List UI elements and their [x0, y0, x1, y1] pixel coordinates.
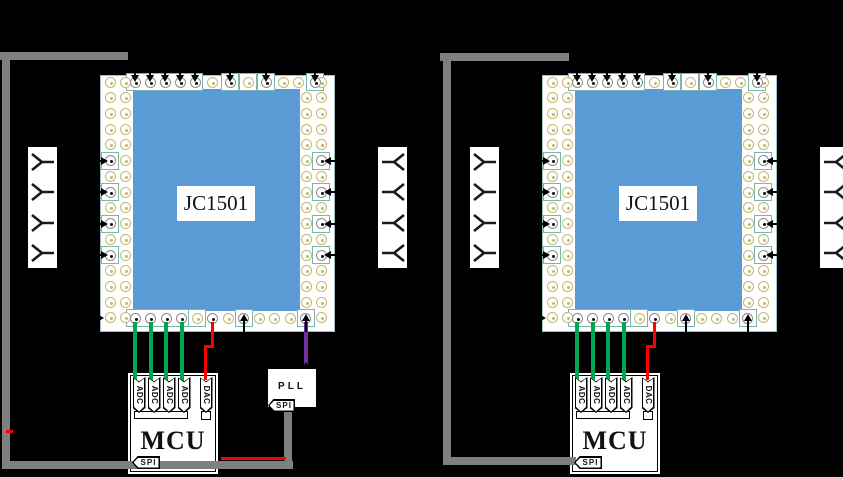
- pad-dot: [552, 317, 555, 320]
- mcu-label: MCU: [130, 425, 216, 457]
- red-mark: [6, 430, 13, 433]
- pad: [293, 77, 304, 88]
- pad: [316, 171, 327, 182]
- pad: [758, 108, 769, 119]
- pad: [547, 171, 558, 182]
- pad-dot: [567, 317, 570, 320]
- pad: [634, 313, 645, 324]
- pad: [120, 312, 131, 323]
- pad: [316, 202, 327, 213]
- pad-dot: [567, 223, 570, 226]
- pad-dot: [670, 318, 673, 321]
- pad: [120, 124, 131, 135]
- pad: [562, 139, 573, 150]
- pad-dot: [306, 129, 309, 132]
- pad-dot: [552, 113, 555, 116]
- pad-dot: [763, 239, 766, 242]
- pad-dot: [748, 286, 751, 289]
- pad-dot: [212, 82, 215, 85]
- pad-dot: [248, 82, 251, 85]
- pad-dot: [197, 318, 200, 321]
- pad-dot: [135, 318, 138, 321]
- pad-dot: [716, 318, 719, 321]
- pad-dot: [577, 318, 580, 321]
- arrow-shaft: [331, 191, 341, 193]
- arrow-down-icon: [603, 75, 611, 82]
- arrow-right-icon: [539, 314, 546, 322]
- pad-dot: [567, 97, 570, 100]
- pad: [316, 108, 327, 119]
- pad: [105, 139, 116, 150]
- arrow-shaft: [331, 160, 341, 162]
- mcu-spi-label: SPI: [579, 456, 602, 469]
- pad: [547, 108, 558, 119]
- pad-dot: [748, 113, 751, 116]
- pad: [316, 297, 327, 308]
- pad-dot: [321, 129, 324, 132]
- pll-spi-label: SPI: [273, 399, 295, 412]
- mcu-pin-tag-adc4: ADC: [620, 377, 633, 413]
- pad-dot: [748, 129, 751, 132]
- pad-dot: [567, 176, 570, 179]
- pad: [562, 77, 573, 88]
- pad-dot: [552, 176, 555, 179]
- pad-dot: [125, 239, 128, 242]
- mcu-pin-tag-adc3: ADC: [605, 377, 618, 413]
- pad-dot: [110, 144, 113, 147]
- pad-dot: [592, 318, 595, 321]
- antenna-icon: [31, 243, 55, 263]
- pad: [105, 265, 116, 276]
- pad-dot: [748, 270, 751, 273]
- pad: [758, 171, 769, 182]
- arrow-left-icon: [766, 251, 773, 259]
- pad-dot: [567, 113, 570, 116]
- pad-dot: [654, 82, 657, 85]
- mcu-pin-tag-dac: DAC: [642, 377, 655, 413]
- arrow-right-icon: [101, 220, 108, 228]
- pad-dot: [567, 129, 570, 132]
- mcu-label: MCU: [572, 425, 658, 457]
- pad: [649, 77, 660, 88]
- pad-dot: [110, 317, 113, 320]
- pad: [547, 265, 558, 276]
- pad: [562, 171, 573, 182]
- pad-dot: [552, 97, 555, 100]
- pad: [562, 265, 573, 276]
- arrow-left-icon: [324, 220, 331, 228]
- mcu-spi-tag: SPI: [574, 456, 602, 469]
- arrow-down-icon: [311, 75, 319, 82]
- pad-dot: [740, 82, 743, 85]
- pad: [105, 297, 116, 308]
- pad: [269, 313, 280, 324]
- mcu-pin-tag-dac: DAC: [200, 377, 213, 413]
- pll-clock-input-icon: [301, 362, 311, 369]
- pad: [562, 124, 573, 135]
- pad: [301, 108, 312, 119]
- pad-dot: [690, 82, 693, 85]
- pad-dot: [552, 239, 555, 242]
- pad: [743, 297, 754, 308]
- pad-dot: [125, 144, 128, 147]
- pad: [758, 92, 769, 103]
- pad: [316, 265, 327, 276]
- pad-dot: [321, 113, 324, 116]
- adc-wire: [180, 322, 184, 381]
- pad: [285, 313, 296, 324]
- pad-dot: [125, 97, 128, 100]
- pad-dot: [763, 113, 766, 116]
- dac-wire: [646, 345, 650, 380]
- arrow-up-icon: [240, 314, 248, 321]
- pad: [301, 202, 312, 213]
- mcu-pin-label: ADC: [590, 377, 602, 413]
- pad: [120, 139, 131, 150]
- arrow-right-icon: [543, 251, 550, 259]
- antenna-icon: [823, 213, 843, 233]
- pad-dot: [125, 160, 128, 163]
- pad: [758, 124, 769, 135]
- pad: [120, 297, 131, 308]
- antenna-icon: [473, 152, 497, 172]
- mcu-pin-label: ADC: [605, 377, 617, 413]
- pll-label: PLL: [269, 378, 315, 394]
- mcu-pin-label: ADC: [178, 377, 190, 413]
- arrow-shaft: [747, 321, 749, 332]
- pad: [758, 297, 769, 308]
- pad: [105, 124, 116, 135]
- adc-wire: [622, 322, 626, 381]
- arrow-shaft: [685, 321, 687, 332]
- pad-dot: [763, 207, 766, 210]
- antenna-icon: [31, 182, 55, 202]
- pad: [547, 124, 558, 135]
- antenna-icon: [823, 152, 843, 172]
- arrow-shaft: [243, 321, 245, 332]
- pad: [547, 139, 558, 150]
- pad: [301, 250, 312, 261]
- pad: [547, 77, 558, 88]
- pad-dot: [552, 129, 555, 132]
- pad-dot: [567, 302, 570, 305]
- mcu-spi-label: SPI: [137, 456, 160, 469]
- antenna-icon: [31, 213, 55, 233]
- pad: [758, 312, 769, 323]
- pad-dot: [306, 144, 309, 147]
- adc-wire: [575, 322, 579, 381]
- arrow-down-icon: [618, 75, 626, 82]
- arrow-down-icon: [146, 75, 154, 82]
- pad: [120, 108, 131, 119]
- mcu-pin-tag-adc1: ADC: [133, 377, 146, 413]
- pad: [743, 155, 754, 166]
- pad-dot: [110, 129, 113, 132]
- pad-dot: [552, 192, 555, 195]
- pad-dot: [321, 302, 324, 305]
- arrow-shaft: [331, 223, 341, 225]
- pad: [547, 281, 558, 292]
- spi-bus-wire: [284, 407, 292, 469]
- arrow-down-icon: [573, 75, 581, 82]
- pad-dot: [552, 144, 555, 147]
- mcu-pll-wire: [221, 457, 286, 460]
- pad: [743, 171, 754, 182]
- pad: [562, 187, 573, 198]
- antenna-icon: [473, 243, 497, 263]
- pad: [301, 234, 312, 245]
- spi-bus-wire: [2, 52, 10, 469]
- mcu-pin-label: ADC: [575, 377, 587, 413]
- pad: [316, 92, 327, 103]
- pad-dot: [125, 286, 128, 289]
- pad: [316, 281, 327, 292]
- arrow-down-icon: [161, 75, 169, 82]
- pad-dot: [763, 82, 766, 85]
- pad-dot: [298, 82, 301, 85]
- pad: [562, 155, 573, 166]
- pad: [758, 265, 769, 276]
- pad-dot: [654, 318, 657, 321]
- pad-dot: [125, 302, 128, 305]
- pad-dot: [110, 239, 113, 242]
- pad-dot: [567, 207, 570, 210]
- pad: [120, 187, 131, 198]
- arrow-left-icon: [766, 188, 773, 196]
- pad-dot: [110, 97, 113, 100]
- arrow-right-icon: [543, 220, 550, 228]
- pad-dot: [110, 223, 113, 226]
- dac-wire: [204, 345, 208, 380]
- arrow-shaft: [305, 321, 307, 332]
- spi-bus-wire: [440, 53, 569, 61]
- pad-dot: [306, 192, 309, 195]
- pad: [547, 202, 558, 213]
- mcu-pin-label: ADC: [148, 377, 160, 413]
- pad: [562, 108, 573, 119]
- adc-wire: [606, 322, 610, 381]
- pad-dot: [125, 176, 128, 179]
- arrow-right-icon: [101, 188, 108, 196]
- pad-dot: [321, 176, 324, 179]
- pad: [301, 281, 312, 292]
- pad: [120, 234, 131, 245]
- pad-dot: [306, 160, 309, 163]
- adc-wire: [133, 322, 137, 381]
- pad-dot: [166, 318, 169, 321]
- mcu-pin-tag-adc2: ADC: [590, 377, 603, 413]
- pad-dot: [552, 82, 555, 85]
- arrow-shaft: [773, 191, 783, 193]
- pad: [562, 312, 573, 323]
- pad-dot: [306, 270, 309, 273]
- pad-dot: [748, 192, 751, 195]
- pad-dot: [567, 239, 570, 242]
- pad: [105, 281, 116, 292]
- arrow-shaft: [773, 254, 783, 256]
- pad: [758, 139, 769, 150]
- pad: [562, 250, 573, 261]
- pad: [105, 234, 116, 245]
- pad: [743, 265, 754, 276]
- pad: [243, 77, 254, 88]
- pad-dot: [623, 318, 626, 321]
- arrow-right-icon: [543, 157, 550, 165]
- pad: [105, 77, 116, 88]
- diagram-stage: JC1501 MCU ADC ADC ADC ADC DAC SPI PLL S…: [0, 0, 843, 477]
- pad-dot: [125, 223, 128, 226]
- pad-dot: [306, 223, 309, 226]
- pad: [758, 281, 769, 292]
- arrow-left-icon: [324, 157, 331, 165]
- pad-dot: [732, 318, 735, 321]
- pad: [301, 265, 312, 276]
- pad-dot: [306, 239, 309, 242]
- pad: [562, 297, 573, 308]
- pad: [120, 155, 131, 166]
- arrow-down-icon: [633, 75, 641, 82]
- arrow-down-icon: [704, 75, 712, 82]
- pad-dot: [763, 144, 766, 147]
- pad-dot: [125, 113, 128, 116]
- spi-bus-wire: [0, 52, 128, 60]
- spi-bus-wire: [443, 457, 576, 465]
- pad-dot: [567, 286, 570, 289]
- pad-dot: [150, 318, 153, 321]
- pad: [696, 313, 707, 324]
- pad-dot: [763, 302, 766, 305]
- pad-dot: [306, 97, 309, 100]
- pad: [301, 187, 312, 198]
- pad-dot: [110, 270, 113, 273]
- pad-dot: [259, 318, 262, 321]
- arrow-up-icon: [744, 314, 752, 321]
- mcu-pin-label: DAC: [200, 377, 212, 413]
- pad: [316, 124, 327, 135]
- pad-dot: [125, 129, 128, 132]
- pad-dot: [228, 318, 231, 321]
- pad: [301, 218, 312, 229]
- pad-dot: [552, 302, 555, 305]
- pad: [758, 202, 769, 213]
- arrow-down-icon: [753, 75, 761, 82]
- pad: [316, 234, 327, 245]
- pad-dot: [110, 286, 113, 289]
- pad-dot: [321, 97, 324, 100]
- antenna-icon: [381, 213, 405, 233]
- pad-dot: [748, 302, 751, 305]
- pad: [547, 312, 558, 323]
- arrow-up-icon: [302, 314, 310, 321]
- pad-dot: [110, 302, 113, 305]
- pad-dot: [567, 144, 570, 147]
- chip-label: JC1501: [177, 186, 255, 221]
- pad-dot: [306, 286, 309, 289]
- pad-dot: [181, 318, 184, 321]
- pad-dot: [110, 192, 113, 195]
- pad: [562, 234, 573, 245]
- arrow-down-icon: [588, 75, 596, 82]
- pad: [105, 92, 116, 103]
- adc-wire: [591, 322, 595, 381]
- antenna-icon: [381, 152, 405, 172]
- pad: [301, 139, 312, 150]
- pad-dot: [110, 160, 113, 163]
- pad-dot: [748, 160, 751, 163]
- pad-dot: [321, 207, 324, 210]
- pad: [547, 234, 558, 245]
- pad-dot: [306, 302, 309, 305]
- antenna-icon: [823, 182, 843, 202]
- pad: [120, 77, 131, 88]
- pad-dot: [552, 223, 555, 226]
- mcu-pin-tag-adc4: ADC: [178, 377, 191, 413]
- arrow-down-icon: [131, 75, 139, 82]
- pad-dot: [725, 82, 728, 85]
- pad: [665, 313, 676, 324]
- pad: [547, 92, 558, 103]
- pad: [743, 234, 754, 245]
- pad-dot: [306, 255, 309, 258]
- pad: [743, 139, 754, 150]
- pad-dot: [321, 317, 324, 320]
- pad: [562, 218, 573, 229]
- pad-dot: [608, 318, 611, 321]
- pad-dot: [321, 82, 324, 85]
- pad: [316, 312, 327, 323]
- pad-dot: [567, 192, 570, 195]
- pad: [105, 108, 116, 119]
- pad: [562, 92, 573, 103]
- pad-dot: [748, 144, 751, 147]
- pad: [120, 218, 131, 229]
- antenna-icon: [381, 243, 405, 263]
- pad: [301, 124, 312, 135]
- arrow-shaft: [331, 254, 341, 256]
- arrow-right-icon: [543, 188, 550, 196]
- antenna-icon: [31, 152, 55, 172]
- pad-dot: [306, 207, 309, 210]
- pad-dot: [763, 129, 766, 132]
- pad: [743, 124, 754, 135]
- pad-dot: [321, 270, 324, 273]
- pad: [120, 281, 131, 292]
- pad: [120, 250, 131, 261]
- adc-wire: [164, 322, 168, 381]
- pad-dot: [552, 270, 555, 273]
- pad: [743, 187, 754, 198]
- pad-dot: [748, 97, 751, 100]
- pad: [562, 202, 573, 213]
- pad: [743, 218, 754, 229]
- arrow-left-icon: [324, 188, 331, 196]
- arrow-down-icon: [668, 75, 676, 82]
- pad-dot: [763, 317, 766, 320]
- pad: [720, 77, 731, 88]
- pad-dot: [552, 286, 555, 289]
- pad: [743, 281, 754, 292]
- arrow-shaft: [773, 160, 783, 162]
- pad-dot: [748, 207, 751, 210]
- pad-dot: [763, 286, 766, 289]
- mcu-pin-tag-adc3: ADC: [163, 377, 176, 413]
- pad: [105, 312, 116, 323]
- mcu-pin-tag-adc2: ADC: [148, 377, 161, 413]
- pad-dot: [567, 82, 570, 85]
- antenna-icon: [473, 182, 497, 202]
- mcu-pin-label: DAC: [642, 377, 654, 413]
- pll-spi-tag: SPI: [268, 399, 295, 412]
